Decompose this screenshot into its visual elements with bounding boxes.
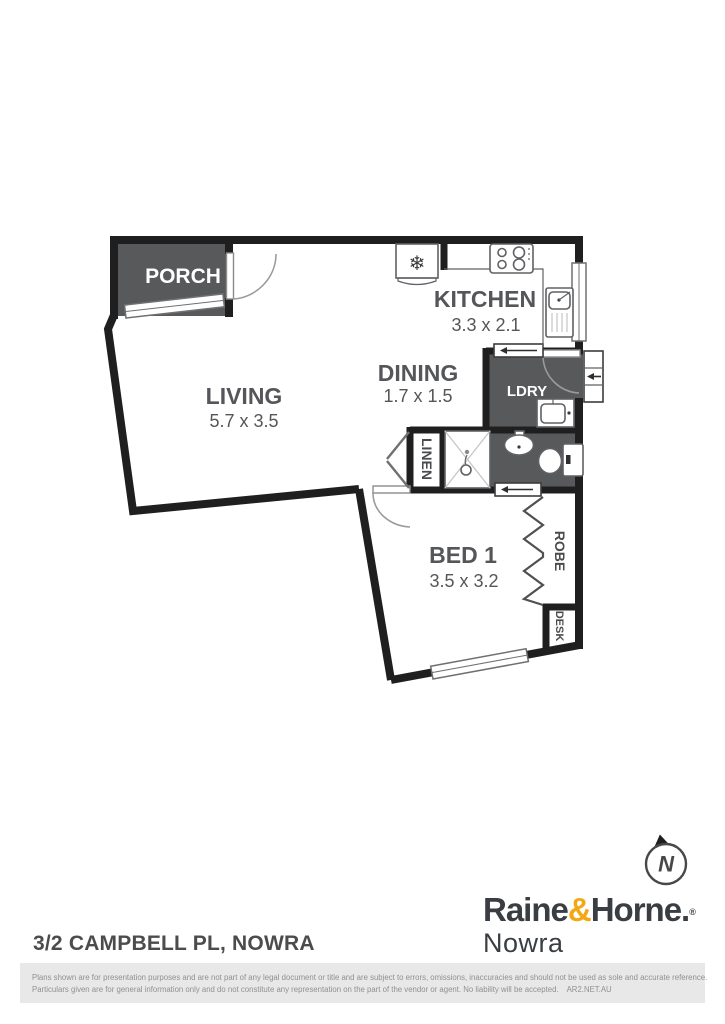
- kitchen-window: [572, 263, 586, 341]
- bed1-label: BED 1: [429, 542, 497, 568]
- dining-dims: 1.7 x 1.5: [383, 386, 452, 406]
- fridge-icon: ❄: [396, 244, 438, 285]
- bedroom-door: [373, 486, 410, 527]
- agency-ampersand: &: [568, 891, 591, 928]
- entry-door: [227, 253, 277, 299]
- plan-credit: AR2.NET.AU: [567, 985, 612, 994]
- bed1-dims: 3.5 x 3.2: [429, 571, 498, 591]
- robe-label: ROBE: [552, 531, 568, 571]
- property-address: 3/2 CAMPBELL PL, NOWRA: [33, 932, 315, 956]
- agency-name-part1: Raine: [483, 891, 568, 928]
- dining-label: DINING: [378, 360, 459, 386]
- floor-plan-drawing: ❄: [0, 0, 725, 1024]
- living-dims: 5.7 x 3.5: [209, 411, 278, 431]
- compass-letter: N: [658, 852, 675, 877]
- laundry-tub-icon: [537, 399, 574, 427]
- shower-icon: [445, 431, 490, 488]
- agency-name-part2: Horne.: [591, 891, 690, 928]
- kitchen-dims: 3.3 x 2.1: [451, 315, 520, 335]
- kitchen-sink-icon: [546, 288, 573, 337]
- robe-bifold-doors: [524, 497, 543, 605]
- agency-logo: Raine&Horne.® Nowra: [483, 893, 696, 957]
- north-compass-icon: N: [640, 832, 692, 888]
- laundry-label: LDRY: [507, 383, 547, 400]
- laundry-sliding-door: [494, 344, 543, 357]
- desk-label: DESK: [553, 611, 565, 642]
- bedroom-window: [431, 649, 529, 679]
- disclaimer-bar: Plans shown are for presentation purpose…: [20, 963, 705, 1003]
- linen-label: LINEN: [419, 438, 435, 480]
- floor-plan-page: ❄: [0, 0, 725, 1024]
- bathroom-sliding-door: [495, 483, 541, 496]
- disclaimer-line1: Plans shown are for presentation purpose…: [32, 972, 693, 984]
- svg-text:❄: ❄: [409, 251, 426, 275]
- cooktop-icon: [490, 244, 533, 273]
- disclaimer-line2: Particulars given are for general inform…: [32, 984, 693, 996]
- living-label: LIVING: [206, 383, 283, 409]
- kitchen-label: KITCHEN: [434, 286, 536, 312]
- porch-label: PORCH: [145, 265, 221, 288]
- agency-name: Raine&Horne.®: [483, 893, 696, 926]
- linen-doors: [387, 432, 409, 488]
- agency-office: Nowra: [483, 930, 696, 957]
- entry-landing: [584, 351, 603, 402]
- registered-mark: ®: [689, 907, 696, 917]
